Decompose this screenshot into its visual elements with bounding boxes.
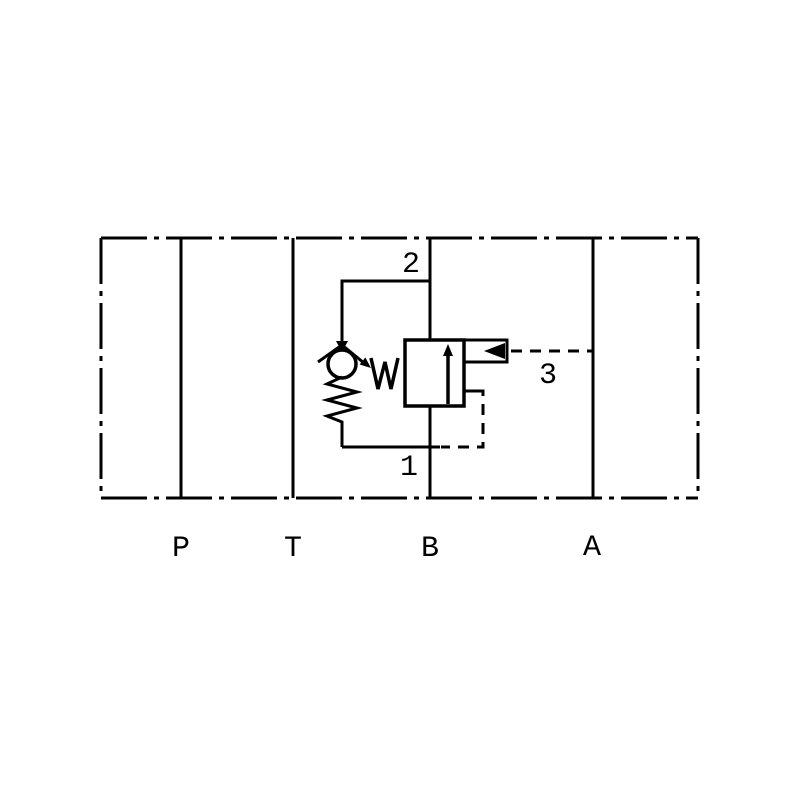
hydraulic-schematic-canvas: P T B A 2 1 3: [0, 0, 800, 800]
node-label-2: 2: [402, 248, 420, 282]
pilot-arrow-icon: [484, 343, 505, 359]
node-label-1: 1: [400, 451, 418, 485]
valve-body-square: [405, 340, 464, 406]
pressure-valve: [371, 340, 593, 447]
node-label-3: 3: [539, 359, 557, 393]
labels: P T B A 2 1 3: [172, 248, 601, 566]
port-label-t: T: [284, 532, 302, 566]
port-label-p: P: [172, 532, 190, 566]
check-valve-ball: [328, 350, 356, 378]
branch-top-connector: [342, 281, 430, 343]
port-label-b: B: [421, 532, 439, 566]
valve-spring-icon: [371, 358, 398, 389]
port-label-a: A: [583, 531, 601, 565]
check-valve-spring-icon: [327, 377, 357, 447]
schematic-page: P T B A 2 1 3: [0, 0, 800, 800]
